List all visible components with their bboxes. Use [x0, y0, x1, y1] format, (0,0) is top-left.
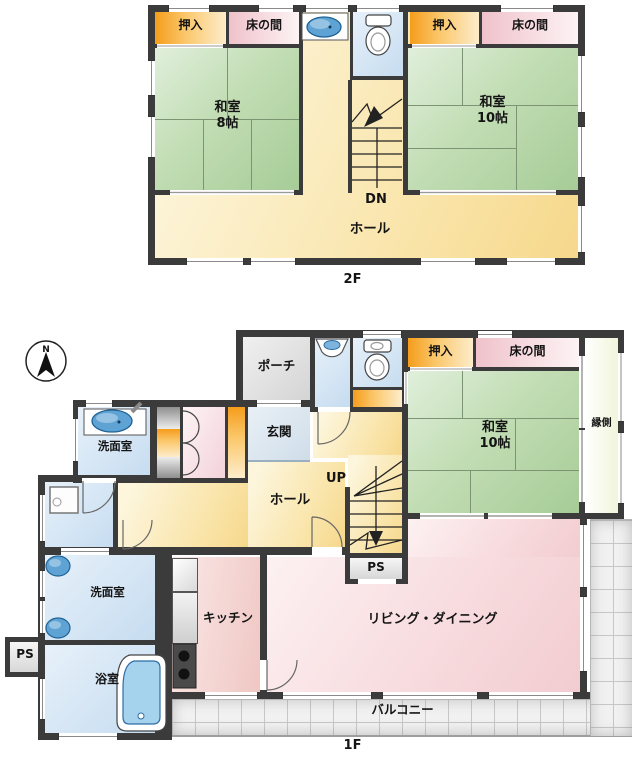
- window: [204, 692, 258, 699]
- window: [356, 5, 400, 12]
- label-1f-balcony: バルコニー: [355, 702, 450, 717]
- window: [256, 400, 302, 407]
- room-1f-hall-upper: [313, 412, 402, 458]
- compass-icon: N: [26, 341, 66, 381]
- room-1f-closet-room: [183, 407, 225, 478]
- floor-plan: N: [0, 0, 632, 764]
- wall-segment: [236, 330, 315, 337]
- label-2f-hall: ホール: [330, 221, 410, 237]
- window: [362, 331, 402, 338]
- label-1f-washitsu10-size: 10帖: [479, 436, 510, 451]
- window: [578, 205, 585, 253]
- tatami-line: [462, 371, 463, 418]
- wall-segment: [225, 407, 228, 483]
- room-1f-wash-corner: [315, 338, 350, 407]
- window: [58, 733, 118, 740]
- tatami-line: [408, 470, 579, 471]
- wall-segment: [260, 552, 267, 660]
- wall-segment: [236, 330, 243, 407]
- window: [420, 258, 476, 265]
- shoe-cabinet: [228, 407, 245, 478]
- label-2f-washitsu8: 和室8帖: [180, 100, 275, 131]
- label-1f-engawa: 縁側: [585, 418, 618, 430]
- wall-segment: [402, 330, 624, 338]
- storage-mid: [157, 429, 180, 457]
- window: [40, 570, 45, 598]
- window: [578, 55, 585, 113]
- kitchen-sink: [172, 558, 198, 592]
- wall-segment: [350, 337, 353, 407]
- window: [250, 258, 296, 265]
- room-1f-hall: [118, 482, 248, 547]
- tatami-line: [408, 418, 579, 419]
- window: [40, 678, 45, 720]
- label-1f-washitsu10: 和室10帖: [450, 420, 540, 451]
- window: [477, 331, 513, 338]
- window: [186, 258, 244, 265]
- label-2f-stairs-dn: DN: [355, 192, 397, 208]
- window: [148, 60, 155, 96]
- label-2f-washitsu10-size: 10帖: [477, 111, 508, 126]
- window: [85, 400, 113, 407]
- label-1f-ps-left: PS: [10, 647, 40, 661]
- storage-top: [157, 407, 180, 429]
- label-1f-kitchen: キッチン: [196, 610, 260, 625]
- sliding-door: [157, 44, 223, 48]
- window: [60, 548, 110, 555]
- room-1f-toilet: [353, 337, 402, 387]
- label-1f-stairs-up: UP: [320, 471, 352, 487]
- wall-segment: [82, 478, 116, 483]
- window: [618, 352, 624, 422]
- wall-segment: [345, 487, 350, 555]
- label-2f-washitsu8-size: 8帖: [216, 116, 238, 131]
- wall-segment: [113, 482, 118, 552]
- label-2f-tokonoma-right: 床の間: [482, 18, 578, 32]
- label-2f-washitsu8-name: 和室: [214, 100, 240, 115]
- window: [40, 600, 45, 634]
- wall-segment: [245, 407, 248, 483]
- balcony-right: [590, 519, 632, 736]
- window: [382, 692, 478, 699]
- window: [282, 692, 372, 699]
- wall-segment: [38, 640, 172, 645]
- label-1f-washroom-upper: 洗面室: [80, 440, 150, 454]
- window: [506, 258, 556, 265]
- wall-segment: [150, 400, 157, 483]
- wall-segment: [312, 547, 342, 555]
- svg-text:N: N: [42, 345, 50, 355]
- wall-segment: [353, 387, 402, 390]
- label-2f-oshiire-right: 押入: [410, 18, 479, 32]
- wall-segment: [5, 672, 45, 677]
- room-1f-living-upper: [408, 519, 580, 557]
- wall-segment: [318, 407, 350, 412]
- sliding-door: [488, 513, 552, 519]
- wall-segment: [403, 12, 408, 193]
- window: [488, 692, 574, 699]
- wall-segment: [348, 80, 352, 193]
- label-1f-oshiire: 押入: [408, 344, 473, 358]
- wall-segment: [353, 76, 405, 80]
- label-1f-tokonoma: 床の間: [476, 344, 579, 358]
- label-1f-floor: 1F: [330, 738, 375, 754]
- sliding-door: [404, 372, 408, 404]
- window: [305, 5, 349, 12]
- wall-segment: [402, 330, 408, 583]
- room-1f-stairs-area: [348, 455, 402, 553]
- sliding-door: [170, 190, 294, 195]
- wall-segment: [358, 579, 396, 584]
- room-2f-toilet: [353, 12, 403, 76]
- window: [40, 494, 45, 542]
- label-1f-ps-stairs: PS: [350, 560, 402, 574]
- wall-segment: [345, 553, 408, 558]
- label-1f-hall: ホール: [250, 492, 330, 508]
- window: [578, 126, 585, 178]
- label-2f-oshiire-left: 押入: [155, 18, 226, 32]
- label-2f-floor: 2F: [330, 272, 375, 288]
- label-2f-washitsu10-name: 和室: [479, 95, 505, 110]
- closet-under-toilet: [353, 390, 402, 407]
- tatami-line: [470, 470, 471, 513]
- wall-segment: [5, 637, 45, 642]
- window: [618, 432, 624, 504]
- step-line: [248, 460, 310, 462]
- label-2f-tokonoma-left: 床の間: [229, 18, 299, 32]
- window: [500, 5, 554, 12]
- sliding-door: [579, 430, 585, 502]
- window: [148, 116, 155, 158]
- sliding-door: [420, 190, 556, 195]
- label-1f-bathroom: 浴室: [72, 672, 142, 686]
- sliding-door: [420, 513, 484, 519]
- sliding-door: [410, 367, 472, 371]
- label-2f-washitsu10: 和室10帖: [445, 95, 540, 126]
- room-1f-bathroom: [45, 645, 155, 733]
- label-1f-living: リビング・ダイニング: [360, 612, 505, 628]
- label-1f-washitsu10-name: 和室: [482, 420, 508, 435]
- label-1f-washroom-lower: 洗面室: [70, 586, 145, 600]
- window: [73, 418, 78, 462]
- window: [258, 5, 294, 12]
- label-1f-porch: ポーチ: [243, 358, 310, 373]
- wall-segment: [350, 12, 353, 80]
- window: [168, 5, 210, 12]
- tatami-line: [408, 148, 516, 149]
- wall-segment: [299, 12, 303, 190]
- label-1f-genkan: 玄関: [248, 424, 310, 439]
- window: [580, 596, 587, 672]
- kitchen-counter: [172, 592, 198, 644]
- room-1f-laundry: [45, 482, 113, 547]
- sliding-door: [412, 44, 476, 48]
- window: [580, 524, 587, 588]
- storage-bottom: [157, 457, 180, 478]
- wall-segment: [180, 407, 183, 483]
